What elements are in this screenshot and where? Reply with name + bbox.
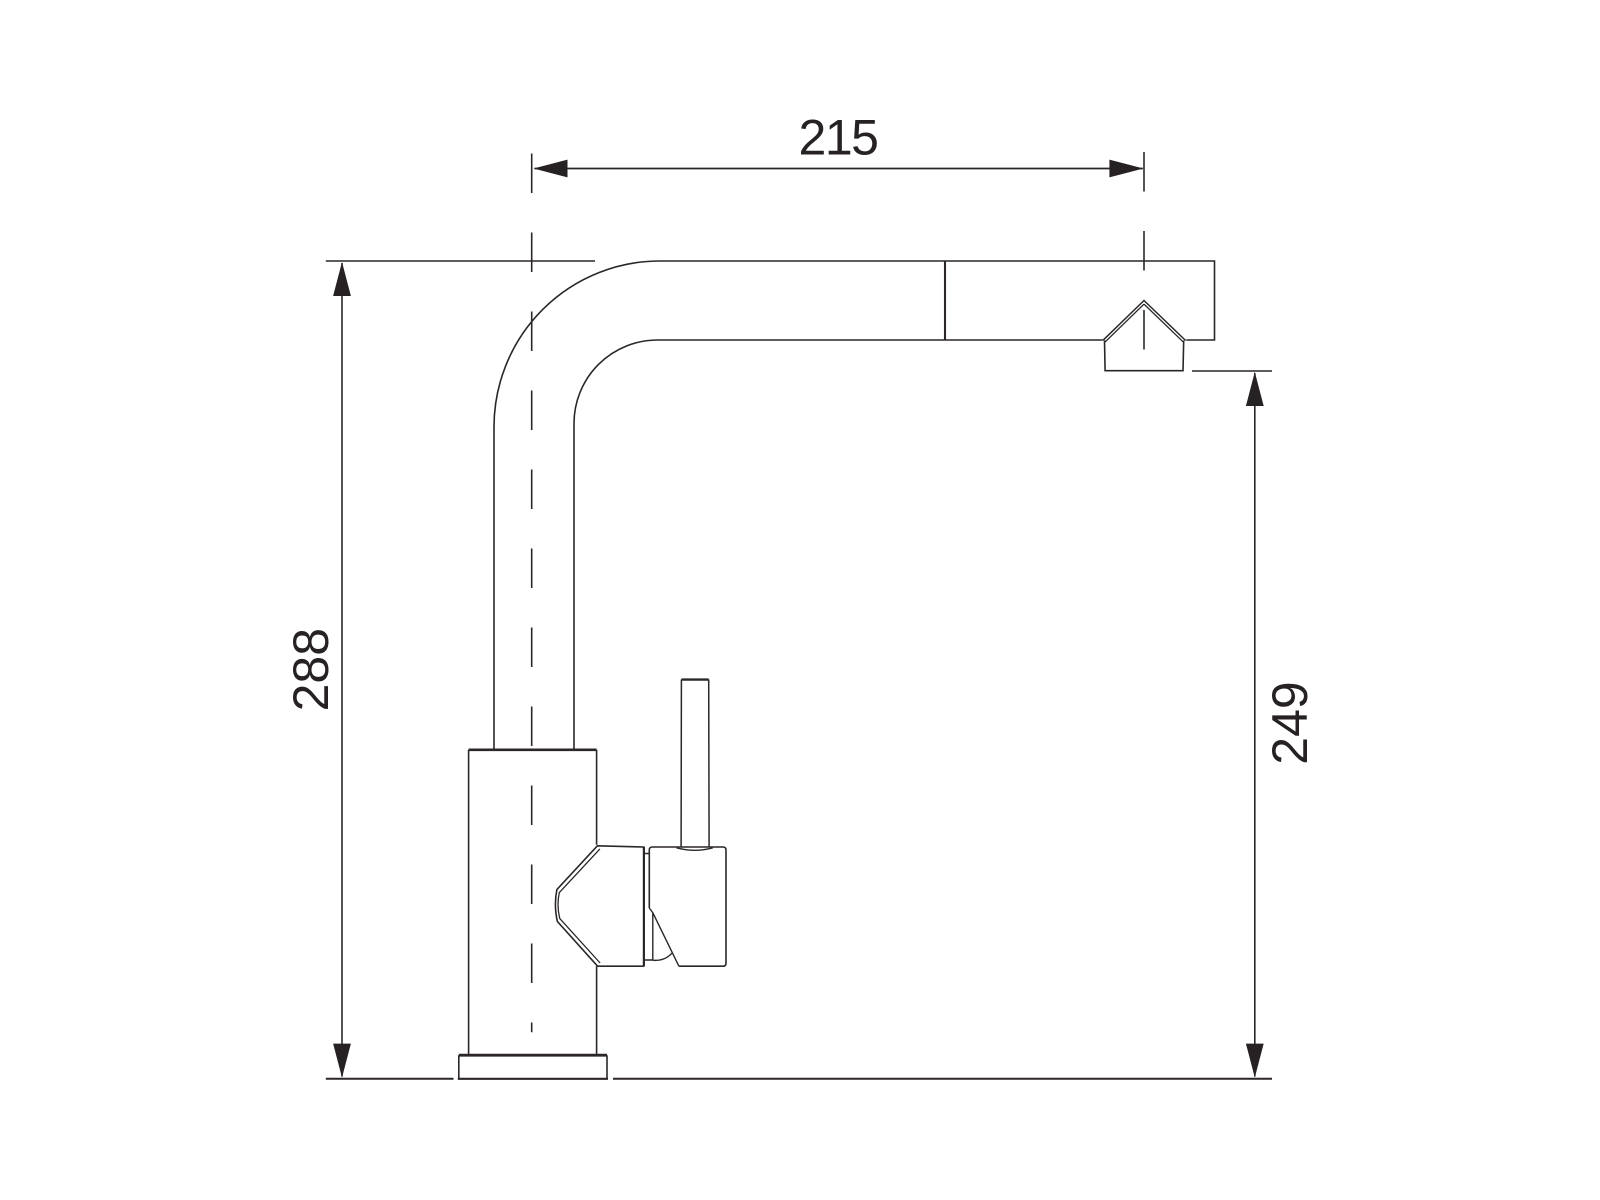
svg-text:215: 215	[799, 110, 878, 166]
svg-text:288: 288	[283, 628, 339, 711]
svg-text:249: 249	[1262, 681, 1318, 764]
